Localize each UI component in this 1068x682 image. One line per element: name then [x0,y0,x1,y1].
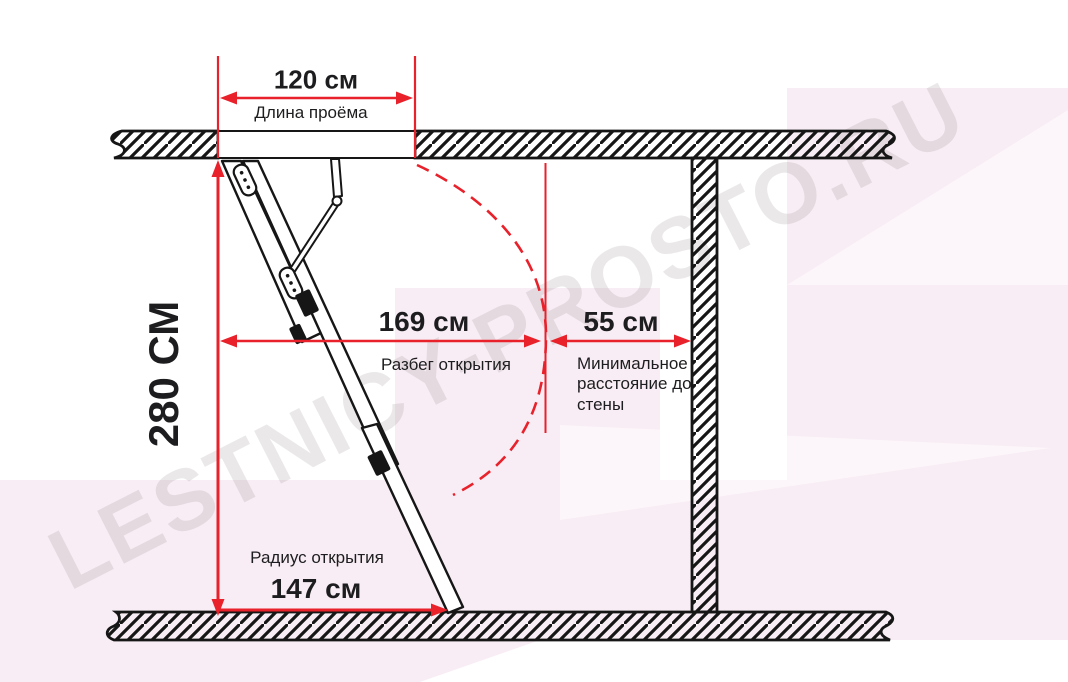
diagram-page: LESTNICY-PROSTO.RU [0,0,1068,682]
dim-opening-width-label: Длина проёма [254,103,367,123]
strut-joint [333,197,342,206]
dim-wall-distance-value: 55 см [583,306,658,338]
dim-ceiling-height-lines [212,160,225,616]
ceiling-left [112,131,218,158]
dim-opening-radius-value: 147 см [271,573,362,605]
dim-ceiling-height-value: 280 СМ [140,301,188,448]
ceiling-right [415,131,895,158]
dim-opening-span-label: Разбег открытия [381,355,511,375]
dim-opening-width-value: 120 см [274,65,358,96]
dim-opening-span-value: 169 см [379,306,470,338]
ceiling-opening [218,131,415,158]
dim-opening-radius-label: Радиус открытия [250,548,384,568]
attic-ladder-drawing [222,159,463,613]
dim-wall-distance-label: Минимальное расстояние до стены [577,354,737,415]
ceiling-mount-rod [331,159,342,197]
floor [107,612,893,640]
